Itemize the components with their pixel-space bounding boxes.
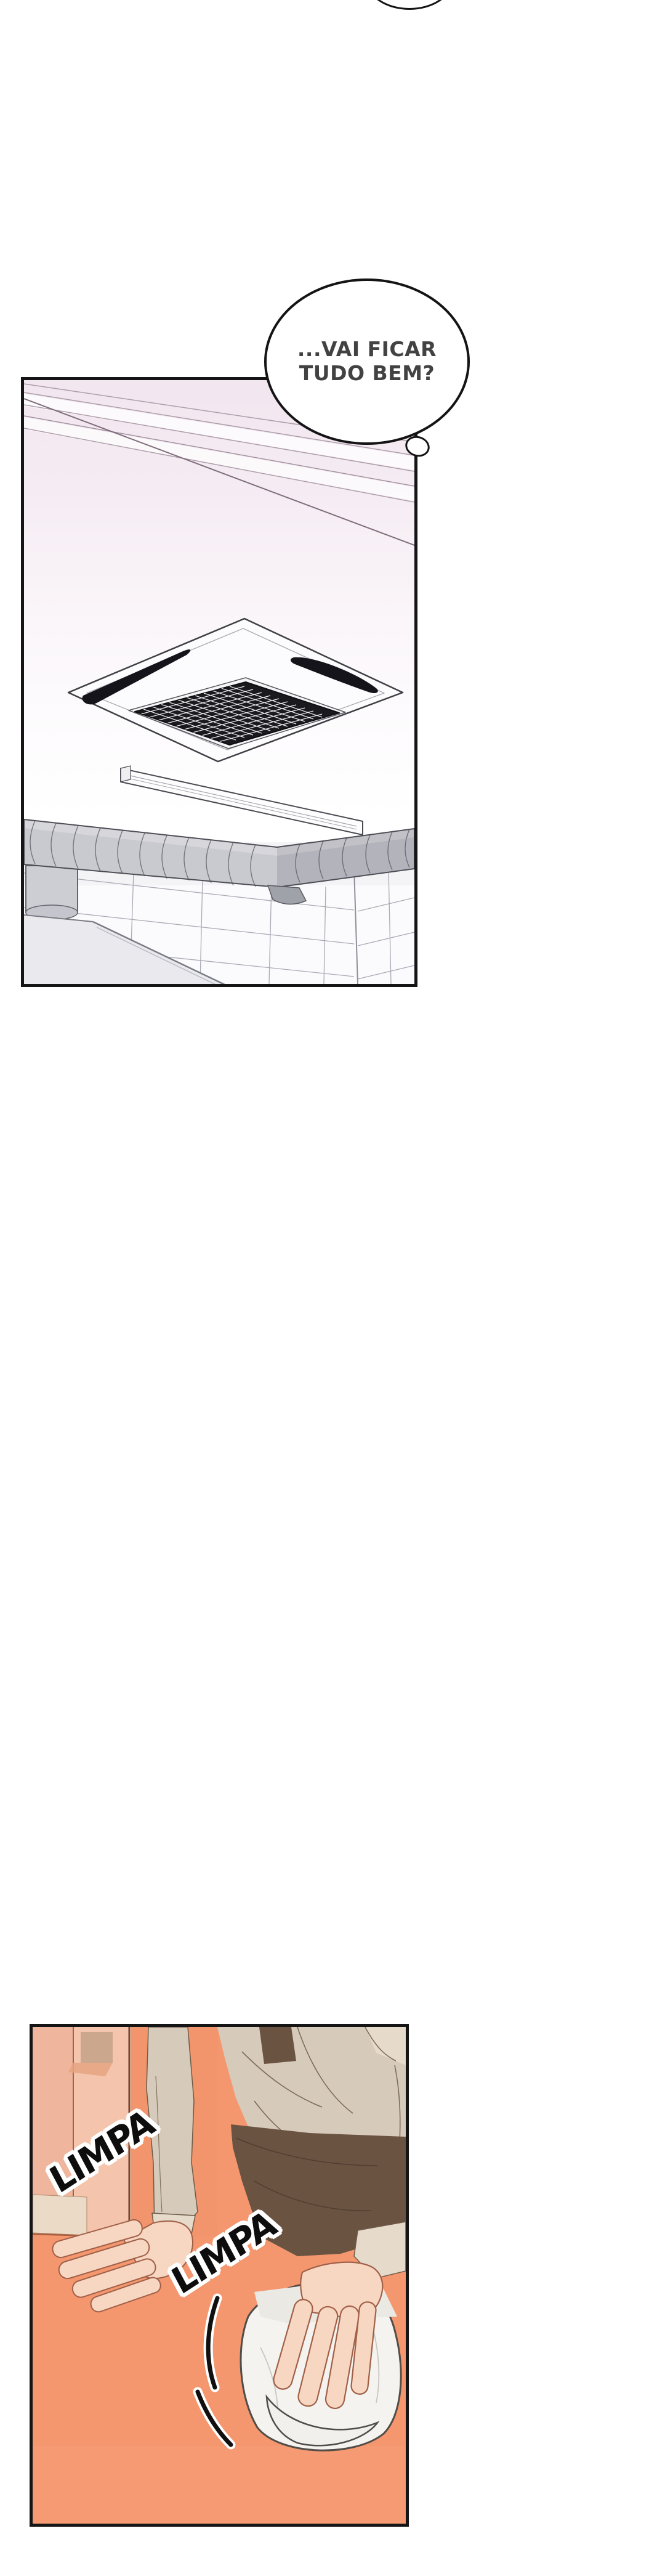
speech-bubble: ...VAI FICAR TUDO BEM? xyxy=(264,278,470,445)
speech-line-1: ...VAI FICAR xyxy=(297,338,437,362)
door-hinge-plate xyxy=(81,2032,113,2063)
panel-cleaning: LIMPA LIMPA xyxy=(30,2024,409,2527)
page: ...VAI FICAR TUDO BEM? xyxy=(0,0,665,2576)
ceiling-scene xyxy=(24,380,414,984)
duct-drop-box xyxy=(26,866,78,920)
panel-ceiling xyxy=(21,377,417,987)
apron-strap xyxy=(259,2027,296,2064)
speech-bubble-text: ...VAI FICAR TUDO BEM? xyxy=(297,338,437,386)
previous-bubble-remnant xyxy=(366,0,453,10)
speech-line-2: TUDO BEM? xyxy=(297,362,437,386)
baseboard xyxy=(33,2195,87,2235)
